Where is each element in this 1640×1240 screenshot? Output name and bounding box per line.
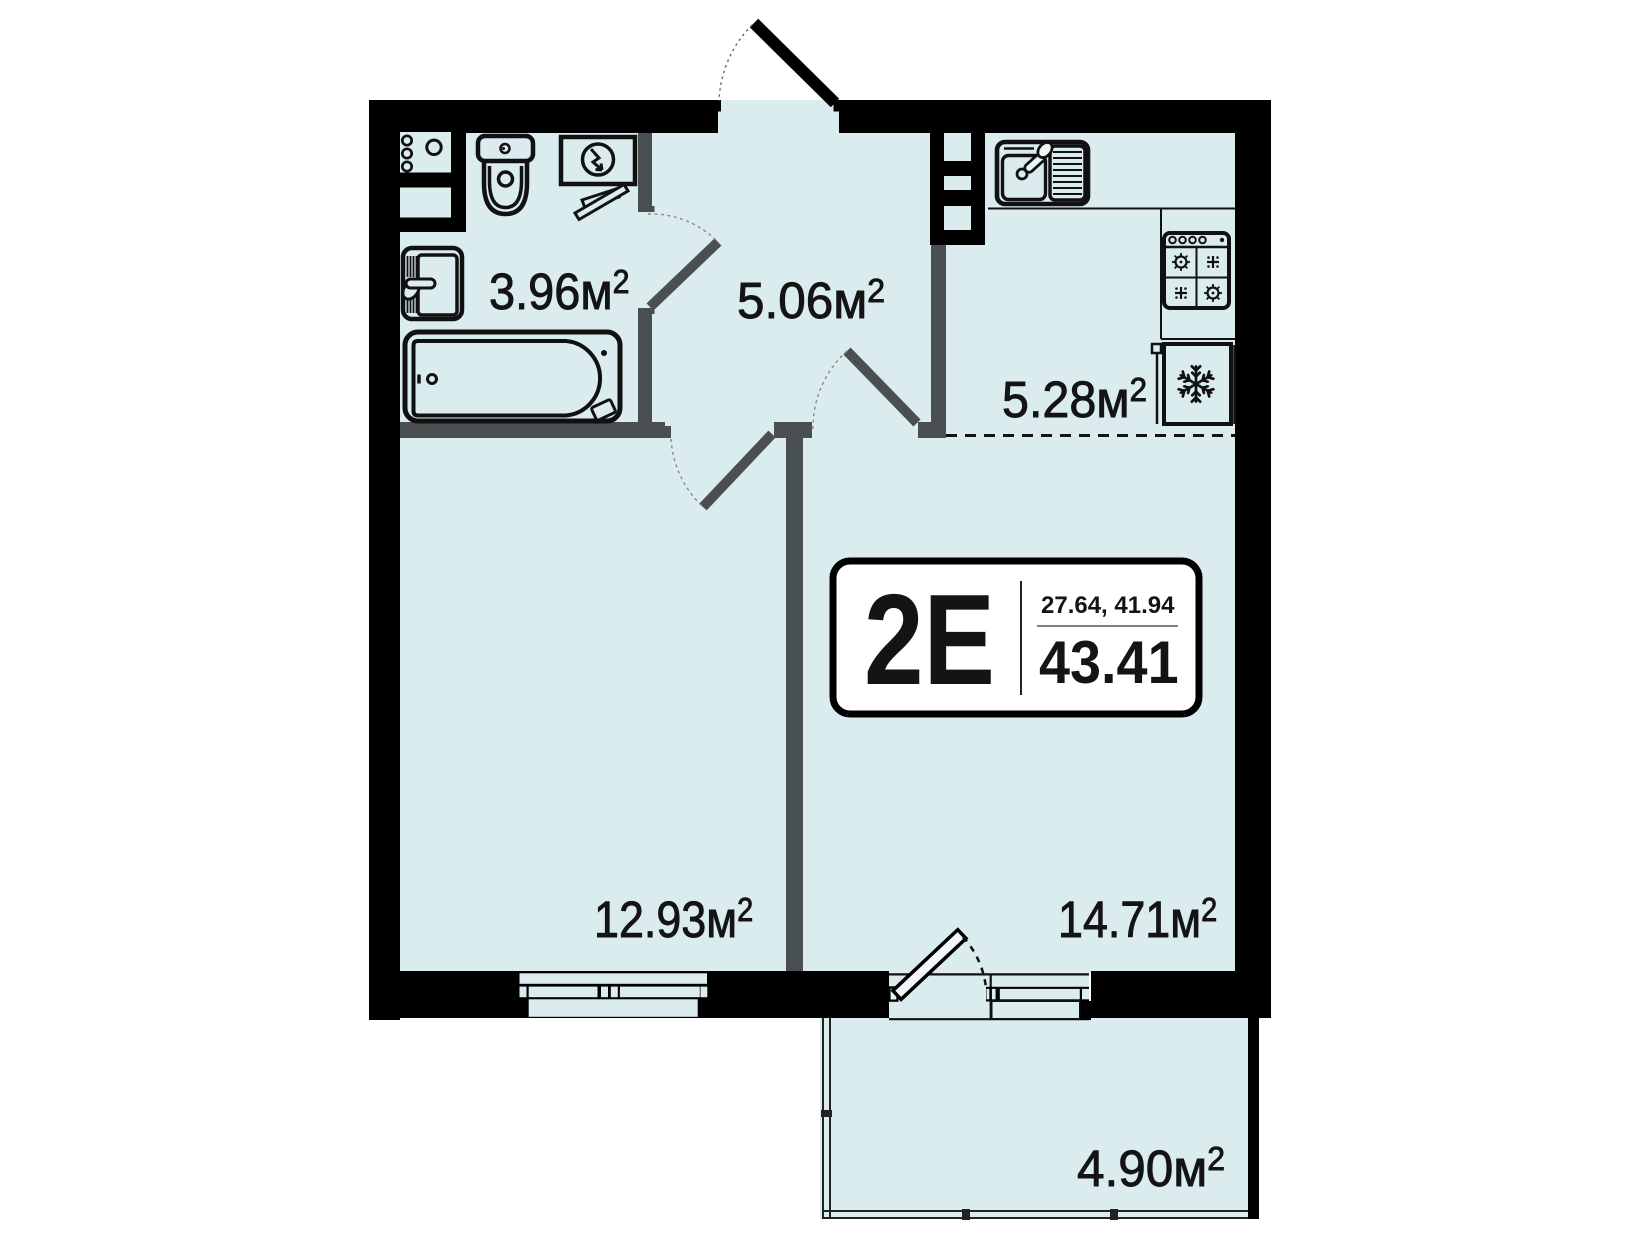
svg-text:27.64, 41.94: 27.64, 41.94 — [1041, 592, 1175, 619]
svg-text:12.93м2: 12.93м2 — [594, 891, 753, 948]
svg-text:2E: 2E — [864, 569, 995, 713]
svg-text:14.71м2: 14.71м2 — [1058, 891, 1217, 948]
svg-text:5.06м2: 5.06м2 — [737, 272, 885, 329]
svg-text:5.28м2: 5.28м2 — [1002, 371, 1147, 428]
svg-text:43.41: 43.41 — [1039, 630, 1179, 696]
svg-text:4.90м2: 4.90м2 — [1077, 1140, 1225, 1197]
svg-text:3.96м2: 3.96м2 — [489, 263, 629, 321]
